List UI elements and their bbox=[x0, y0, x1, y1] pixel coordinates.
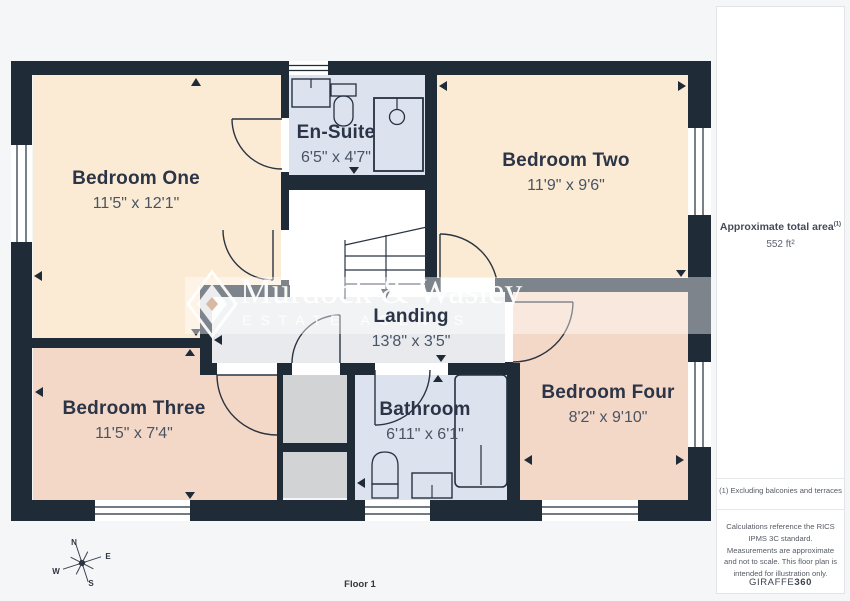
window-ensuite-top bbox=[289, 61, 328, 75]
area-footnote: (1) Excluding balconies and terraces bbox=[717, 486, 844, 495]
watermark-logo-icon bbox=[186, 268, 246, 340]
window-bathroom-bottom bbox=[365, 500, 430, 521]
total-area-value: 552 ft² bbox=[717, 239, 844, 250]
disclaimer-text: Calculations reference the RICS IPMS 3C … bbox=[723, 521, 838, 580]
sidebar-divider-2 bbox=[717, 509, 844, 510]
room-bedroom-four-floor bbox=[520, 363, 688, 500]
giraffe360-logo: GIRAFFE360 bbox=[717, 577, 844, 588]
floor-label: Floor 1 bbox=[300, 579, 420, 590]
compass-s: S bbox=[88, 579, 94, 588]
total-area-title: Approximate total area(1) bbox=[717, 221, 844, 233]
watermark-title: Murdock & Wasley bbox=[240, 270, 560, 312]
floorplan-page: N E W S Murdock & Wasley ESTATE AGENTS B… bbox=[0, 0, 850, 601]
sidebar-divider bbox=[717, 478, 844, 479]
window-bedroom-one-left bbox=[11, 145, 32, 242]
room-bedroom-two-floor bbox=[437, 75, 688, 278]
info-sidebar: Approximate total area(1) 552 ft² (1) Ex… bbox=[716, 6, 845, 594]
window-bedroom-four-bottom bbox=[542, 500, 638, 521]
room-ensuite-floor bbox=[289, 75, 425, 175]
compass-icon: N E W S bbox=[52, 538, 111, 588]
cupboard-floor-lower bbox=[283, 452, 347, 498]
total-area-superscript: (1) bbox=[834, 222, 841, 228]
compass-n: N bbox=[71, 538, 77, 547]
watermark-subtitle: ESTATE AGENTS bbox=[242, 312, 472, 328]
room-bedroom-three-floor bbox=[33, 348, 200, 500]
room-bedroom-one-floor-2 bbox=[33, 75, 200, 338]
brand-name: GIRAFFE bbox=[749, 577, 794, 588]
window-bedroom-four-right bbox=[688, 362, 711, 447]
compass-e: E bbox=[105, 552, 111, 561]
total-area-block: Approximate total area(1) 552 ft² bbox=[717, 221, 844, 250]
total-area-title-text: Approximate total area bbox=[720, 221, 834, 233]
brand-suffix: 360 bbox=[794, 577, 812, 588]
compass-w: W bbox=[52, 567, 60, 576]
room-bedroom-three-floor-2 bbox=[200, 375, 277, 500]
window-bedroom-three-bottom bbox=[95, 500, 190, 521]
cupboard-floor-upper bbox=[283, 373, 347, 443]
window-bedroom-two-right bbox=[688, 128, 711, 215]
room-bathroom-floor bbox=[355, 370, 507, 500]
